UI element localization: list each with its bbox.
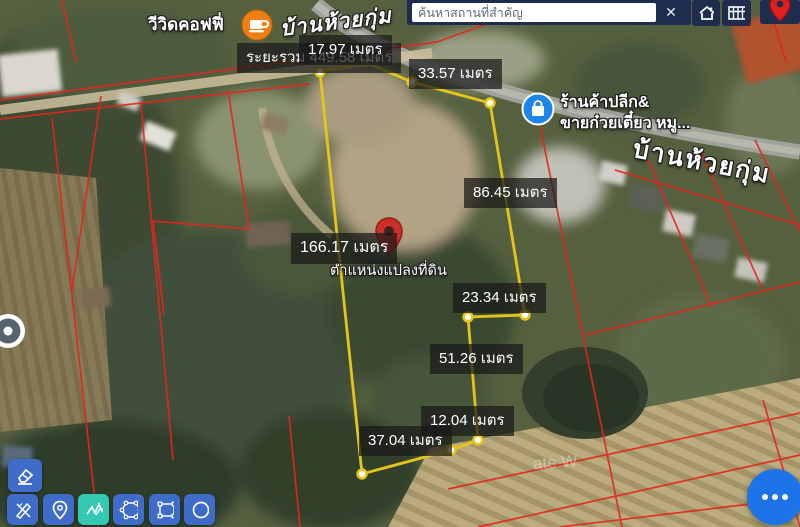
search-clear-button[interactable]: ✕: [656, 2, 686, 24]
measure-segment-label: 37.04 เมตร: [359, 426, 452, 456]
draw-pencil-ruler-icon: [13, 499, 32, 521]
map-poi-marker-icon[interactable]: [0, 311, 36, 355]
polygon-tool-button[interactable]: [113, 494, 144, 525]
map-watermark: ate W: [532, 451, 578, 474]
pin-tool-button[interactable]: [43, 494, 74, 525]
eraser-icon: [14, 465, 36, 487]
parcel-grid-icon: [728, 5, 745, 21]
draw-polygon-icon: [119, 499, 138, 521]
measure-polyline-icon: [84, 499, 103, 521]
measure-segment-label: 51.26 เมตร: [430, 344, 523, 374]
home-icon: [698, 5, 714, 21]
drop-pin-icon: [49, 499, 68, 521]
poi-label-shop: ร้านค้าปลีก& ขายก๋วยเตี๋ยว หมู...: [560, 92, 690, 134]
measure-segment-label: 86.45 เมตร: [464, 178, 557, 208]
poi-label-coffee-shop: วีวิดคอฟฟี่: [148, 11, 224, 38]
more-dots-icon: [762, 494, 768, 500]
shopping-bag-icon[interactable]: [521, 92, 555, 126]
marker-tool-button[interactable]: [760, 0, 800, 24]
measure-segment-label: 23.34 เมตร: [453, 283, 546, 313]
poi-label-shop-line2: ขายก๋วยเตี๋ยว หมู...: [560, 113, 690, 134]
search-input[interactable]: [412, 3, 656, 22]
parcel-grid-button[interactable]: [722, 0, 751, 26]
search-bar: ✕: [407, 0, 691, 25]
poi-label-shop-line1: ร้านค้าปลีก&: [560, 92, 690, 113]
coffee-cup-icon[interactable]: [240, 8, 274, 42]
red-marker-icon: [768, 0, 792, 24]
rectangle-tool-button[interactable]: [149, 494, 180, 525]
circle-tool-button[interactable]: [184, 494, 215, 525]
draw-rectangle-icon: [155, 499, 174, 521]
measure-segment-label: 33.57 เมตร: [409, 59, 502, 89]
measure-segment-label: 17.97 เมตร: [299, 35, 392, 65]
measure-line-tool-button[interactable]: [78, 494, 109, 525]
more-actions-fab[interactable]: [747, 469, 800, 525]
eraser-tool-button[interactable]: [8, 459, 42, 492]
home-button[interactable]: [692, 0, 720, 26]
draw-tool-button[interactable]: [7, 494, 38, 525]
draw-circle-icon: [190, 499, 209, 521]
measure-segment-label: 166.17 เมตร: [291, 233, 397, 264]
